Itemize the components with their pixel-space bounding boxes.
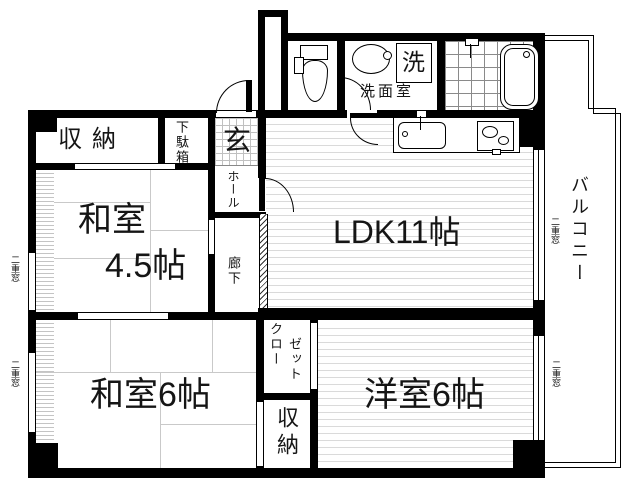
stove-burner-small bbox=[498, 136, 509, 145]
window-strip-lower bbox=[36, 320, 54, 443]
wall-shaft-left bbox=[258, 10, 265, 113]
wall-washroom-bath bbox=[437, 41, 445, 113]
stove-knob bbox=[492, 149, 501, 155]
left-window-lower bbox=[28, 353, 36, 432]
bathtub-drain-icon bbox=[523, 51, 530, 58]
corridor-label: 廊下 bbox=[227, 256, 240, 286]
wall-right-mid bbox=[533, 300, 545, 336]
balcony-rail-top-outer bbox=[545, 35, 594, 36]
closet-sliding-door bbox=[310, 323, 318, 389]
balcony-window-western bbox=[533, 336, 545, 440]
storage-bottom-label: 収納 bbox=[275, 406, 297, 460]
closet-label-col2: ゼット bbox=[288, 337, 301, 382]
japanese-room-small-name: 和室 bbox=[78, 203, 186, 237]
pillar-bottom-right bbox=[513, 440, 545, 470]
kitchen-faucet-icon bbox=[416, 110, 427, 118]
japanese-room-small-label: 和室 4.5帖 bbox=[78, 203, 186, 283]
tatami-line bbox=[160, 424, 256, 425]
wall-shoebox-left bbox=[158, 112, 165, 168]
balcony-rail-right-upper-outer bbox=[593, 35, 594, 114]
balcony-rail-step-outer bbox=[593, 113, 621, 114]
kitchen-faucet-stem bbox=[420, 116, 421, 130]
corridor-washitsu-sliding-door bbox=[208, 220, 215, 254]
storage-top-label: 収納 bbox=[58, 128, 126, 152]
balcony-rail-bottom-outer bbox=[545, 467, 621, 468]
window-strip-upper bbox=[36, 170, 54, 312]
stove-burner-large bbox=[482, 126, 498, 138]
entrance-label: 玄 bbox=[223, 127, 251, 155]
japanese-room-6-label: 和室6帖 bbox=[90, 378, 211, 412]
balcony-rail-right-lower-outer bbox=[620, 113, 621, 468]
balcony-rail-bottom-inner bbox=[545, 462, 616, 463]
left-window-upper bbox=[28, 253, 36, 310]
tatami-line bbox=[110, 320, 111, 372]
washing-machine-label: 洗 bbox=[402, 51, 425, 74]
entry-door-arc bbox=[216, 80, 249, 113]
wall-top-right bbox=[281, 33, 545, 41]
kitchen-sink-drain bbox=[402, 131, 408, 137]
toilet-tank-icon bbox=[300, 45, 328, 60]
fusuma-between-washitsu bbox=[78, 312, 168, 320]
storage-bottom-sliding-door bbox=[256, 402, 264, 466]
wall-midcol-left bbox=[208, 110, 215, 320]
ldk-corridor-partition bbox=[259, 214, 268, 308]
balcony-window-western-sash bbox=[538, 336, 539, 440]
balcony-label: バルコニー bbox=[570, 175, 588, 285]
toilet-flush-icon bbox=[294, 57, 304, 74]
shower-icon bbox=[465, 38, 479, 46]
washroom-label: 洗面室 bbox=[360, 84, 414, 99]
washbasin-faucet-icon bbox=[383, 51, 392, 60]
wall-bottom-outer bbox=[28, 468, 545, 478]
pillar-bottom-left bbox=[28, 443, 58, 470]
balcony-window-ldk bbox=[533, 150, 545, 300]
toilet-bowl-icon bbox=[302, 60, 328, 102]
wall-ldk-left-upper bbox=[258, 110, 266, 178]
double-window-label-left-lower: 二重窓 bbox=[10, 360, 19, 387]
shoe-cabinet-label: 下駄箱 bbox=[175, 120, 188, 165]
hall-label: ホール bbox=[227, 170, 239, 209]
floorplan: 洗 収納 下駄箱 玄 ホール 廊下 和室 4.5帖 LDK11帖 和室6帖 洋室… bbox=[0, 0, 631, 488]
bathtub-inner bbox=[504, 48, 535, 106]
shower-stem bbox=[470, 44, 471, 58]
wall-ldk-bottom bbox=[258, 308, 545, 320]
wall-shaft-right bbox=[281, 10, 288, 113]
tatami-line bbox=[212, 320, 213, 372]
closet-label-col1: クロー bbox=[269, 322, 282, 367]
storage-top-sliding-door bbox=[75, 163, 175, 170]
japanese-room-small-size: 4.5帖 bbox=[105, 249, 186, 283]
pillar-top-left bbox=[28, 110, 57, 132]
ldk-label: LDK11帖 bbox=[333, 216, 460, 248]
double-window-label-left-upper: 二重窓 bbox=[10, 255, 19, 282]
balcony-rail-right-upper-inner bbox=[588, 40, 589, 109]
balcony-window-ldk-sash bbox=[538, 150, 539, 300]
double-window-label-right-western: 二重窓 bbox=[551, 360, 560, 387]
western-room-6-label: 洋室6帖 bbox=[364, 378, 485, 412]
wall-closet-storage bbox=[264, 393, 310, 400]
entrance-threshold-line bbox=[215, 165, 258, 166]
double-window-label-right-ldk: 二重窓 bbox=[550, 217, 559, 244]
balcony-rail-top-inner bbox=[545, 40, 589, 41]
balcony-rail-step-inner bbox=[588, 108, 616, 109]
balcony-rail-right-lower-inner bbox=[615, 108, 616, 463]
tatami-line bbox=[36, 372, 256, 373]
